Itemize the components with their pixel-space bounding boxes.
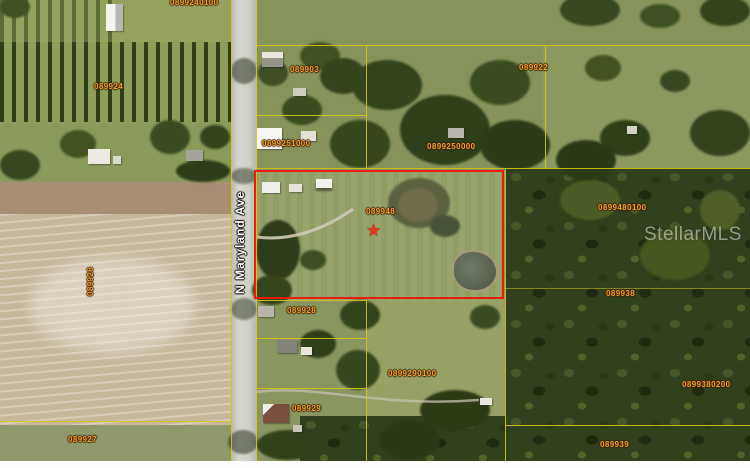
- tree-cluster: [470, 60, 530, 105]
- building: [263, 404, 289, 423]
- stellar-mls-watermark: StellarMLS: [644, 224, 742, 246]
- road-tree-shadow: [231, 298, 257, 320]
- parcel-line: [0, 421, 231, 422]
- parcel-line: [257, 388, 366, 389]
- tree-cluster: [480, 120, 550, 170]
- tree-cluster: [176, 160, 230, 182]
- tree-cluster: [660, 70, 690, 92]
- tree-cluster: [380, 420, 440, 460]
- parcel-line: [505, 168, 506, 461]
- tree-cluster: [690, 110, 750, 156]
- aerial-parcel-map[interactable]: ★ 08992401000899240899030899220899251000…: [0, 0, 750, 468]
- location-star-icon: ★: [366, 222, 381, 239]
- tree-cluster: [585, 55, 621, 81]
- building: [627, 126, 637, 134]
- plowed-field-light-patch: [30, 258, 195, 353]
- parcel-line: [231, 0, 232, 461]
- building: [277, 340, 297, 353]
- forest-clearing: [560, 180, 620, 220]
- road-tree-shadow: [228, 430, 258, 454]
- building: [88, 149, 110, 164]
- building: [262, 52, 283, 67]
- parcel-line: [257, 300, 366, 301]
- building: [106, 4, 123, 31]
- tree-cluster: [330, 120, 390, 168]
- tree-cluster: [150, 120, 190, 154]
- building: [480, 398, 492, 405]
- parcel-line: [505, 288, 750, 289]
- building: [186, 150, 203, 161]
- tree-cluster: [200, 125, 230, 149]
- parcel-line: [257, 338, 366, 339]
- tree-cluster: [320, 58, 366, 94]
- building: [258, 306, 274, 317]
- road-tree-shadow: [231, 58, 257, 84]
- parcel-line: [505, 425, 750, 426]
- parcel-line: [366, 300, 367, 461]
- building: [301, 347, 312, 355]
- orchard-grove: [0, 42, 231, 122]
- tree-cluster: [640, 4, 680, 28]
- parcel-line: [366, 45, 367, 168]
- building: [293, 88, 306, 96]
- parcel-line: [257, 115, 366, 116]
- building: [256, 128, 282, 149]
- tree-cluster: [0, 150, 40, 180]
- building: [301, 131, 316, 141]
- image-bottom-border: [0, 461, 750, 468]
- tree-cluster: [400, 95, 490, 165]
- trail-path: [257, 378, 482, 423]
- parcel-line: [545, 45, 546, 168]
- tree-cluster: [556, 140, 616, 180]
- parcel-line: [257, 45, 750, 46]
- highlighted-parcel-boundary: ★: [254, 170, 504, 299]
- building: [113, 156, 121, 164]
- building: [448, 128, 464, 138]
- road-name-label: N Maryland Ave: [233, 176, 247, 294]
- tree-cluster: [470, 305, 500, 329]
- tree-cluster: [282, 95, 322, 125]
- tree-cluster: [340, 300, 380, 330]
- parcel-line: [257, 168, 750, 169]
- plowed-field-dark-band: [0, 182, 231, 214]
- tree-cluster: [257, 430, 317, 460]
- southwest-grass: [0, 425, 231, 461]
- building: [293, 425, 302, 432]
